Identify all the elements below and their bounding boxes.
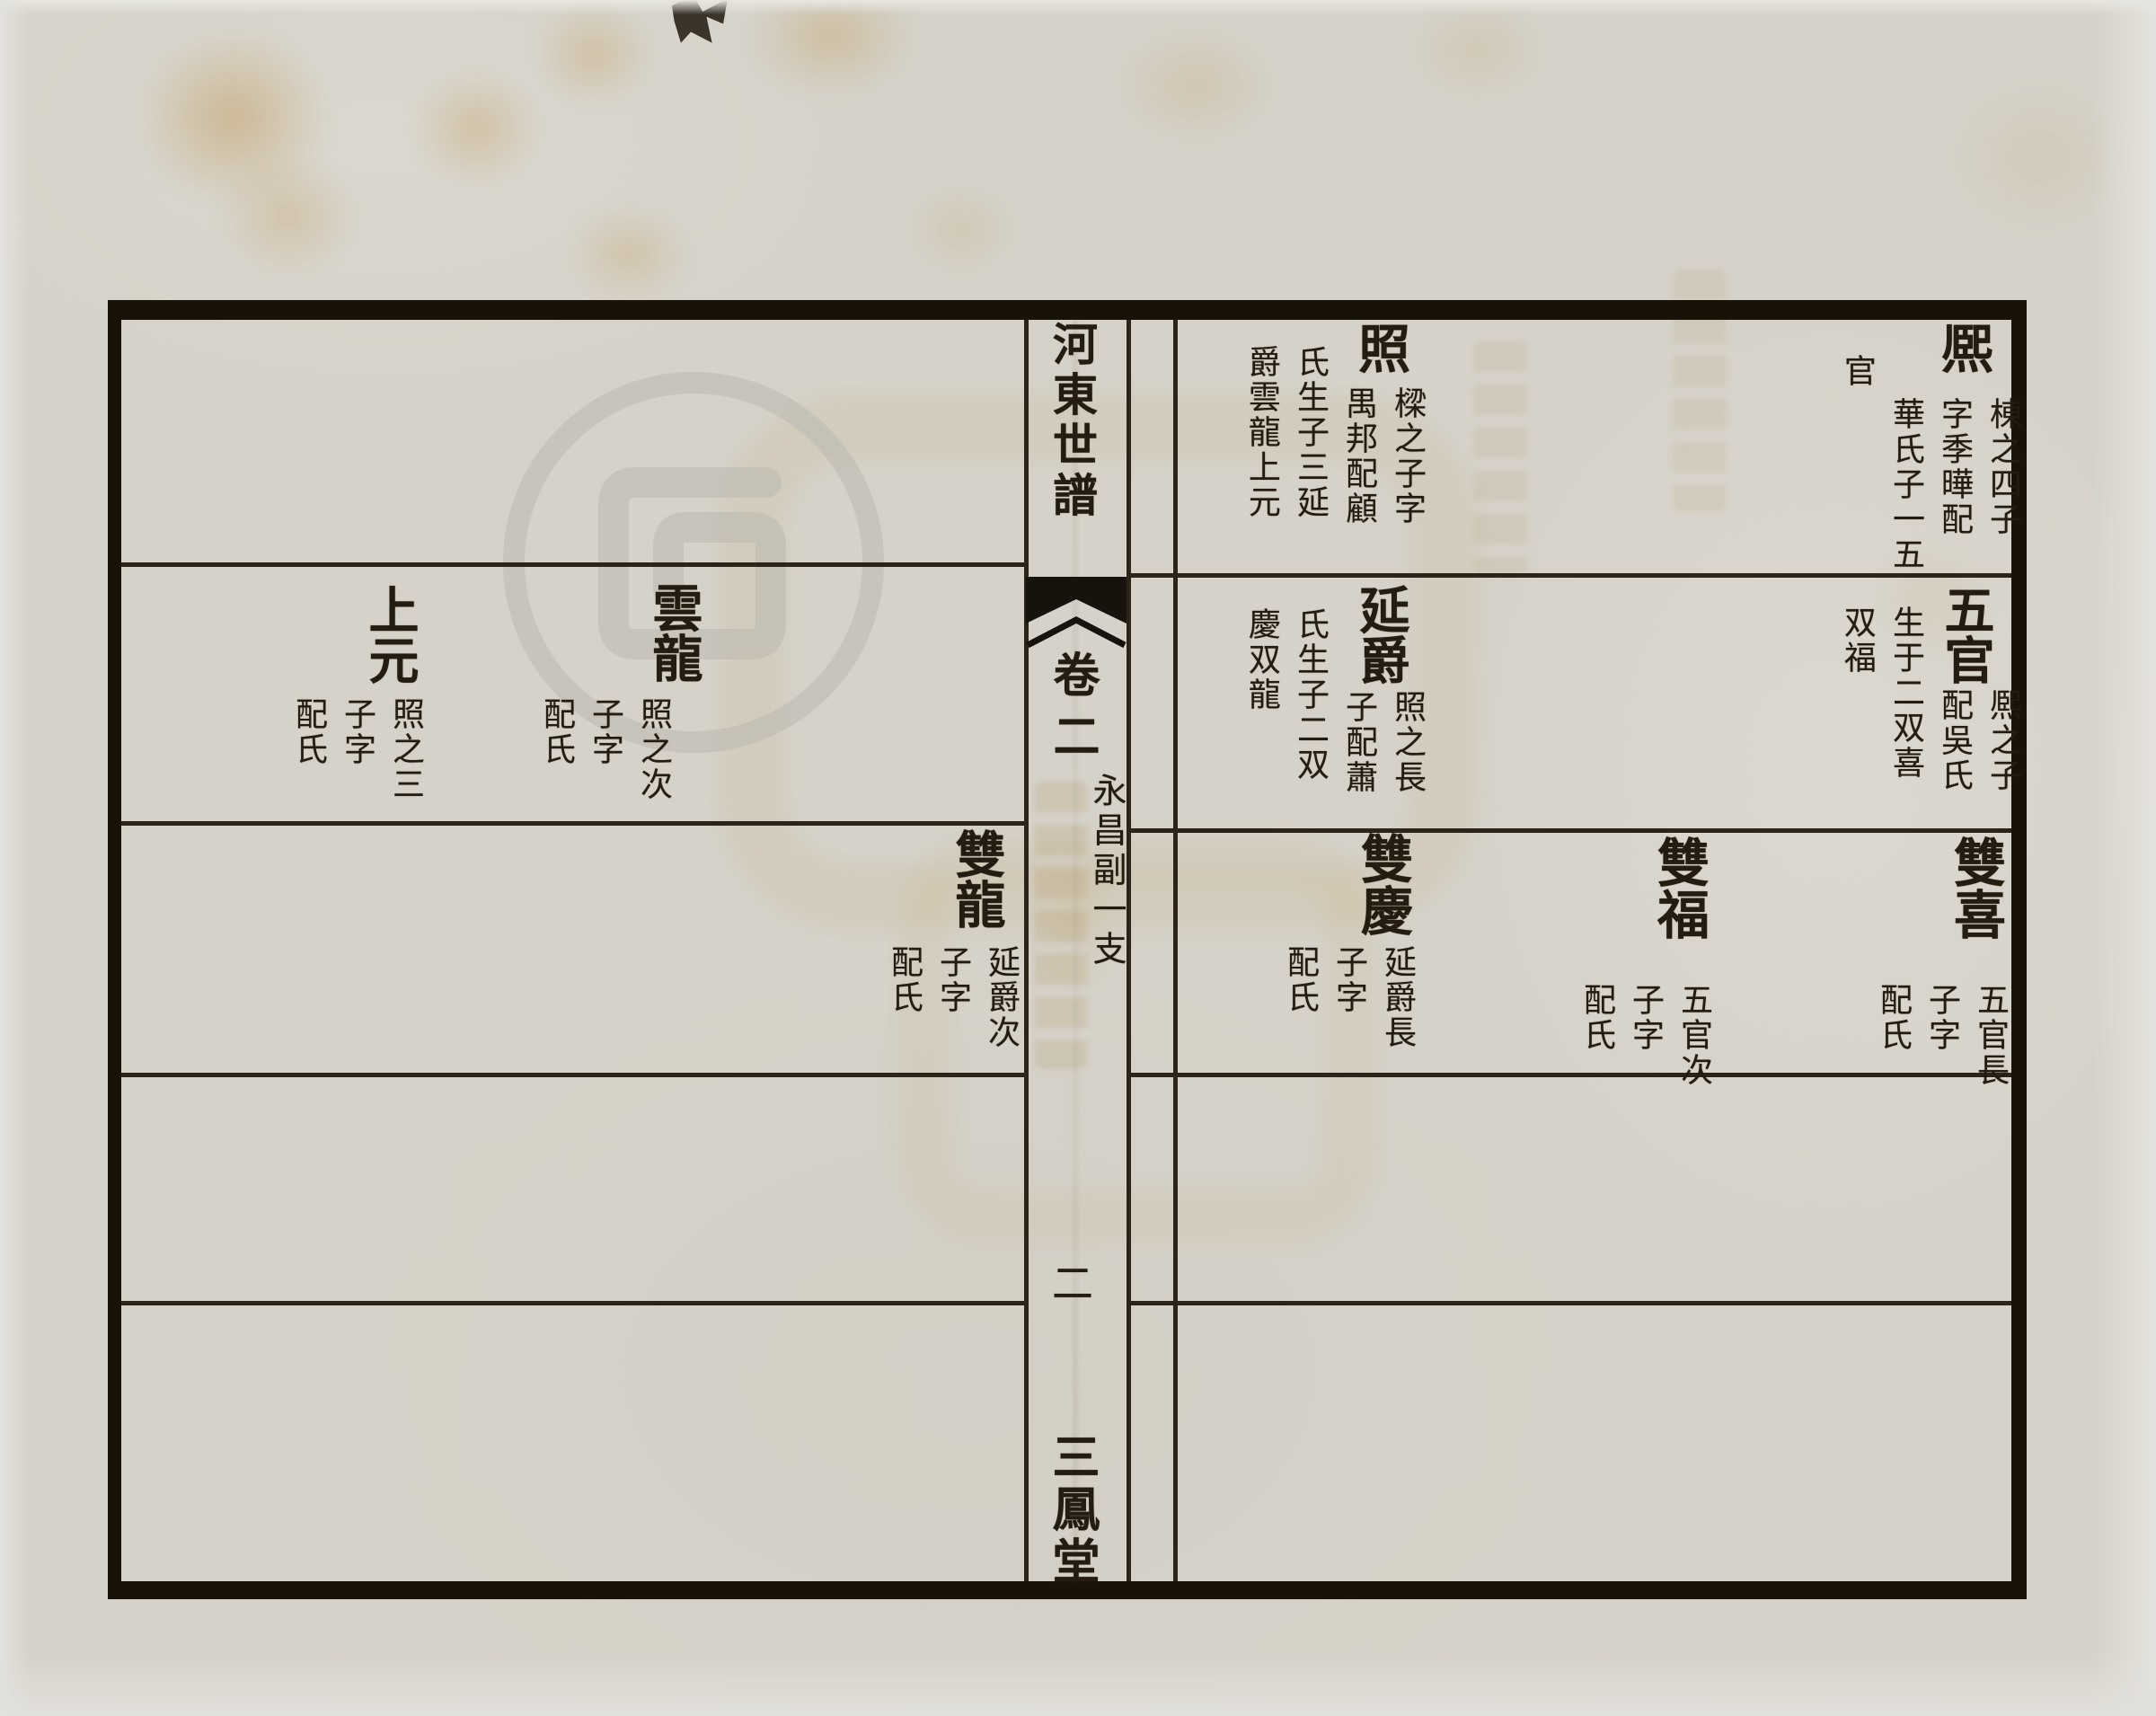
person-note-column: 官: [1839, 354, 1876, 389]
person-note-column: 配吳氏: [1936, 688, 1973, 793]
row-divider: [121, 1301, 1024, 1305]
entry-wuguan: 五官 熈之子 配吳氏 生于二双喜 双福: [1815, 580, 2021, 825]
branch-label: 永昌副一支: [1090, 773, 1124, 970]
person-note-column: 子字: [1923, 983, 1960, 1053]
person-note-column: 樑之子字: [1389, 386, 1426, 526]
person-name: 熈: [1936, 322, 1989, 374]
entry-shuangqing: 雙慶 延爵長 子字 配氏: [1241, 830, 1421, 1069]
person-note-column: 生于二双喜: [1887, 606, 1924, 781]
person-note-column: 子字: [1627, 983, 1664, 1053]
person-note-column: 五官次: [1675, 983, 1712, 1088]
stain-blob: [409, 67, 543, 189]
person-note-column: 禺邦配顧: [1340, 386, 1377, 526]
entry-shuangfu: 雙福 五官次 子字 配氏: [1538, 830, 1718, 1069]
person-note-column: 配氏: [538, 697, 575, 767]
person-note-column: 字季曄配: [1936, 397, 1973, 537]
person-note-column: 子字: [339, 697, 376, 767]
stain-blob: [907, 184, 1015, 274]
stain-blob: [1114, 27, 1276, 144]
person-note-column: 配氏: [290, 697, 327, 767]
book-title: 河東世譜: [1049, 321, 1094, 522]
person-note-column: 子字: [1330, 945, 1367, 1015]
entry-xi: 熈 棟之四子 字季曄配 華氏子一五 官: [1815, 320, 2021, 573]
stain-blob: [530, 0, 656, 108]
stain-blob: [1410, 0, 1545, 99]
person-note-column: 華氏子一五: [1887, 397, 1924, 572]
person-note-column: 子字: [934, 945, 971, 1015]
entry-shuangxi: 雙喜 五官長 子字 配氏: [1834, 830, 2014, 1069]
row-divider: [121, 1073, 1024, 1077]
person-note-column: 熈之子: [1984, 688, 2021, 793]
volume-label: 卷二: [1048, 650, 1095, 773]
person-note-column: 双福: [1839, 606, 1876, 676]
person-note-column: 五官長: [1972, 983, 2009, 1088]
scanned-genealogy-page: 河東世譜 卷二 永昌副一支 二 三鳳堂 熈 棟之四子 字季曄配 華氏子一五 官 …: [0, 0, 2156, 1716]
page-number: 二: [1049, 1261, 1091, 1303]
person-name: 照: [1353, 322, 1406, 374]
person-name: 雙喜: [1948, 836, 2001, 940]
person-note-column: 子字: [587, 697, 623, 767]
person-name: 上元: [364, 584, 415, 685]
center-column-right-rule: [1127, 320, 1131, 1581]
person-note-column: 子配蕭: [1340, 690, 1377, 795]
entry-yunlong: 雲龍 照之次 子字 配氏: [528, 579, 701, 818]
person-note-column: 配氏: [886, 945, 923, 1015]
entry-shuanglong: 雙龍 延爵次 子字 配氏: [847, 825, 1020, 1069]
person-name: 延爵: [1355, 584, 1406, 685]
entry-yanjue: 延爵 照之長 子配蕭 氏生子二双 慶双龍: [1181, 580, 1426, 825]
right-page-left-rule: [1173, 320, 1178, 1581]
person-note-column: 延爵次: [983, 945, 1020, 1050]
row-divider: [1131, 1301, 2011, 1305]
person-note-column: 氏生子二双: [1292, 607, 1329, 783]
person-note-column: 照之長: [1389, 690, 1426, 795]
person-note-column: 照之三: [387, 697, 424, 802]
person-name: 雙慶: [1356, 832, 1409, 936]
person-name: 雙龍: [950, 828, 1002, 929]
person-note-column: 氏生子三延: [1292, 345, 1329, 520]
person-note-column: 配氏: [1875, 983, 1912, 1053]
person-note-column: 棟之四子: [1984, 397, 2021, 537]
person-name: 雲龍: [648, 582, 699, 683]
person-name: 五官: [1940, 584, 1991, 685]
person-note-column: 延爵長: [1379, 945, 1416, 1050]
person-note-column: 爵雲龍上元: [1243, 345, 1280, 520]
entry-shangyuan: 上元 照之三 子字 配氏: [252, 579, 424, 818]
person-note-column: 照之次: [635, 697, 672, 802]
row-divider: [121, 562, 1024, 567]
stain-blob: [1949, 81, 2129, 234]
person-note-column: 慶双龍: [1243, 607, 1280, 712]
center-column-left-rule: [1024, 320, 1029, 1581]
stain-blob: [216, 153, 359, 279]
person-note-column: 配氏: [1578, 983, 1615, 1053]
person-note-column: 配氏: [1282, 945, 1319, 1015]
row-divider: [1131, 573, 2011, 578]
stain-blob: [566, 202, 692, 305]
person-name: 雙福: [1652, 836, 1705, 940]
hall-name: 三鳳堂: [1048, 1432, 1096, 1588]
entry-zhao: 照 樑之子字 禺邦配顧 氏生子三延 爵雲龍上元: [1181, 320, 1426, 573]
